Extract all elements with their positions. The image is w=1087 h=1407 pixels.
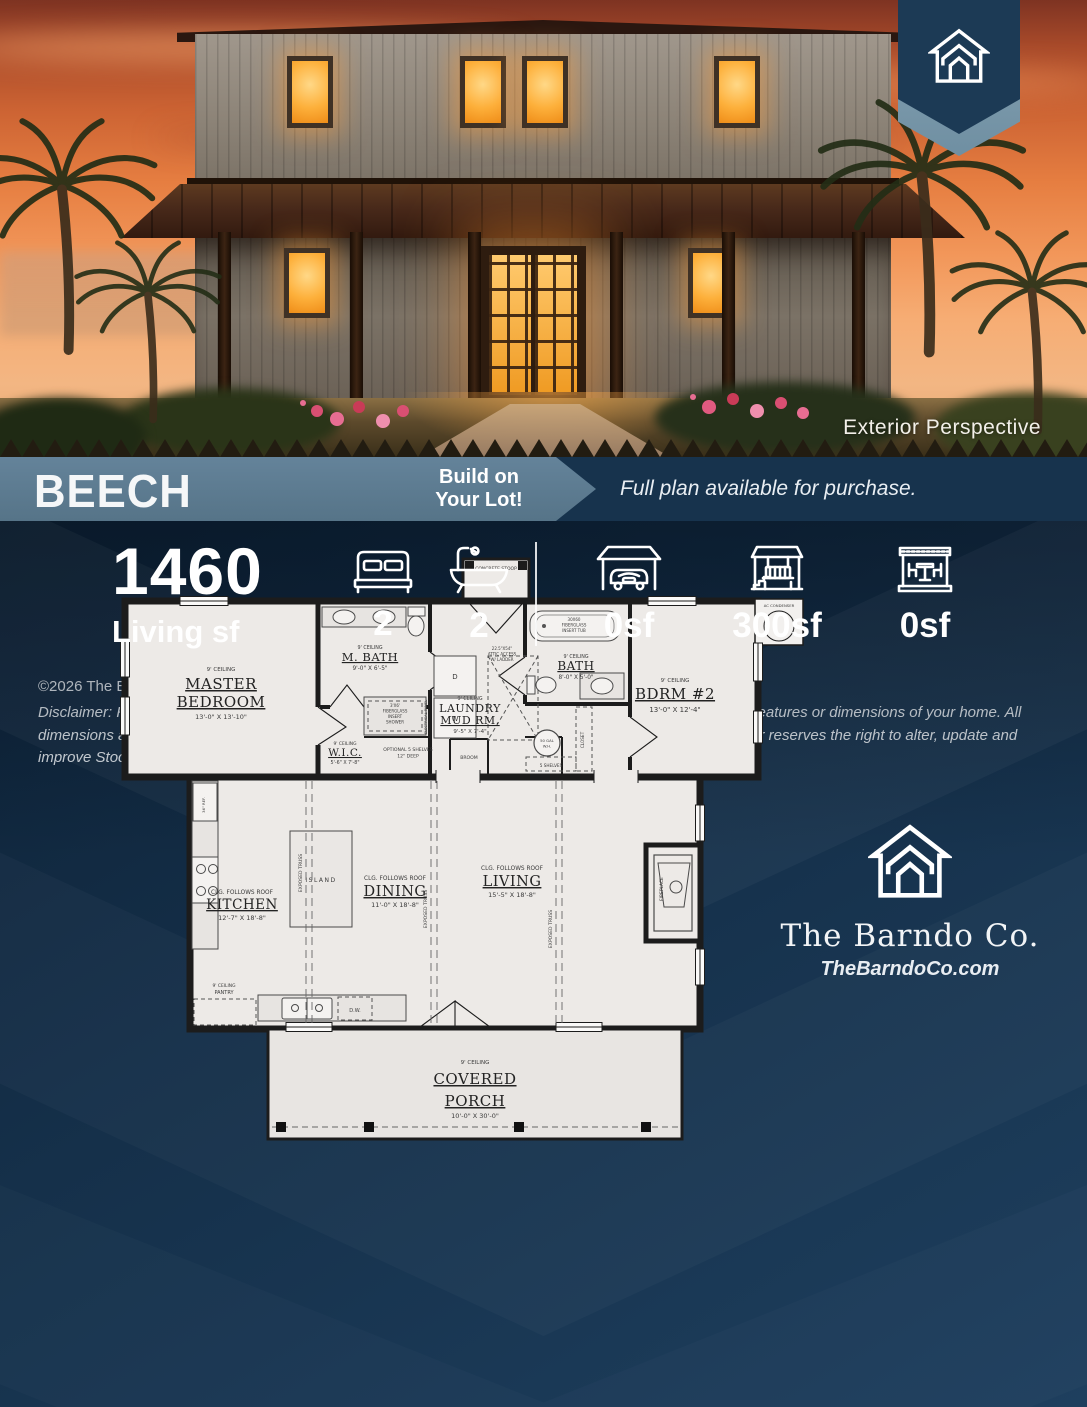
flowers [300,400,306,406]
fence-silhouette [0,439,1087,457]
tagline: Full plan available for purchase. [620,457,917,521]
laundry-dims: 9'-5" X 7'-4" [453,729,486,735]
living-sf-value: 1460 [112,538,317,604]
shower-label: SHOWER [386,720,404,725]
optional-shelves-label: 12" DEEP [397,754,419,760]
master-dims: 13'-0" X 13'-10" [195,713,247,721]
garage-stat: 0sf [555,542,703,646]
porch-stat: 300sf [703,542,851,646]
kitchen-clg: CLG. FOLLOWS ROOF [211,890,273,896]
stats-divider [535,542,537,646]
living-area-stat: 1460 Living sf [112,538,317,650]
house-rendering [183,20,903,440]
patio-sf: 0sf [900,606,951,646]
shower-label: 3'X6' [390,703,400,708]
brand-block: The Barndo Co. TheBarndoCo.com [755,821,1065,981]
porch-roof [121,184,965,238]
dining-clg: CLG. FOLLOWS ROOF [364,876,426,882]
cta-line2: Your Lot! [404,489,554,512]
lower-section: CONCRETE STOOP AC CONDENSER 9' CEILING M… [0,521,1087,1407]
master-name1: MASTER [185,675,257,693]
stats-bar: 1460 Living sf 2 [0,521,1087,666]
electrical-panel-label: ELECTRICAL PANEL [424,700,428,734]
bedrooms-count: 2 [373,604,392,644]
bedrooms-stat: 2 [335,544,431,644]
shower-label: INSERT [388,714,403,719]
barn-logo-icon [868,821,952,899]
dining-name: DINING [363,884,426,900]
kitchen-name: KITCHEN [206,897,278,913]
dining-dims: 11'-0" X 18'-8" [371,901,419,909]
build-on-your-lot-label: Build on Your Lot! [404,457,554,521]
plan-name: BEECH [34,464,192,518]
bdrm2-name: BDRM #2 [635,685,715,703]
kitchen-dims: 12'-7" X 18'-8" [218,914,266,922]
exposed-truss-label: EXPOSED TRUSS [548,910,554,949]
bed-icon [350,544,416,594]
front-door [480,246,586,404]
photo-caption: Exterior Perspective [843,416,1041,440]
brand-name: The Barndo Co. [755,918,1065,954]
dishwasher-label: D.W. [349,1008,361,1014]
fireplace-label: FIREPLACE [659,877,665,901]
bathrooms-stat: 2 [431,542,527,646]
living-sf-label: Living sf [112,614,317,650]
living-dims: 15'-5" X 18'-8" [488,891,536,899]
patio-stat: 0sf [851,542,999,646]
upper-window [522,56,568,128]
dryer-label: D [452,673,457,681]
lower-window [284,248,330,318]
pantry-name: PANTRY [214,990,234,996]
bath-icon [446,542,512,596]
porch-dims: 10'-0" X 30'-0" [451,1112,499,1120]
porch-clg: 9' CEILING [461,1060,490,1066]
brand-website: TheBarndoCo.com [755,958,1065,981]
fridge-label: 36" REF. [201,797,206,813]
mbath-dims: 9'-0" X 6'-5" [352,666,387,672]
bdrm2-dims: 13'-0" X 12'-4" [649,706,700,714]
brand-badge [898,0,1020,160]
bdrm2-clg: 9' CEILING [661,678,690,684]
upper-window [460,56,506,128]
cta-line1: Build on [404,466,554,489]
pantry-clg: 9' CEILING [213,983,237,989]
door-leaf [489,255,531,395]
closet-label: CLOSET [580,731,585,748]
laundry-name2: MUD RM. [440,714,499,727]
flowers [690,394,696,400]
upper-window [287,56,333,128]
plan-flyer: Exterior Perspective BEECH Build on Your… [0,0,1087,1407]
broom-label: BROOM [460,755,478,761]
shower-label: FIBERGLASS [383,709,408,714]
wic-dims: 5'-6" X 7'-8" [330,760,359,766]
porch-name2: PORCH [445,1092,506,1110]
master-clg: 9' CEILING [207,667,236,673]
door-leaf [535,255,577,395]
exposed-truss-label: EXPOSED TRUSS [298,854,304,893]
patio-icon [892,542,958,596]
bathrooms-count: 2 [469,606,488,646]
garage-sf: 0sf [604,606,655,646]
master-name2: BEDROOM [177,693,266,711]
porch-name1: COVERED [433,1070,516,1088]
exposed-truss-label: EXPOSED TRUSS [423,890,429,929]
garage-icon [596,542,662,596]
island-label: ISLAND [305,877,336,884]
title-band: BEECH Build on Your Lot! Full plan avail… [0,457,1087,521]
wic-name: W.I.C. [328,747,362,759]
water-heater-label: W.H. [543,744,552,749]
shelves-label: 5 SHELVES [540,763,563,768]
living-clg: CLG. FOLLOWS ROOF [481,866,543,872]
upper-window [714,56,760,128]
exterior-photo: Exterior Perspective [0,0,1087,457]
porch-sf: 300sf [732,606,822,646]
water [0,252,210,336]
optional-shelves-label: OPTIONAL 5 SHELVES [383,747,433,753]
washer-label: W [452,715,459,723]
living-name: LIVING [483,874,542,890]
bath-dims: 8'-0" X 5'-0" [558,675,593,681]
barn-logo-icon [928,26,990,84]
water-heater-label: 50 GAL [540,738,555,743]
porch-swing-icon [744,542,810,596]
